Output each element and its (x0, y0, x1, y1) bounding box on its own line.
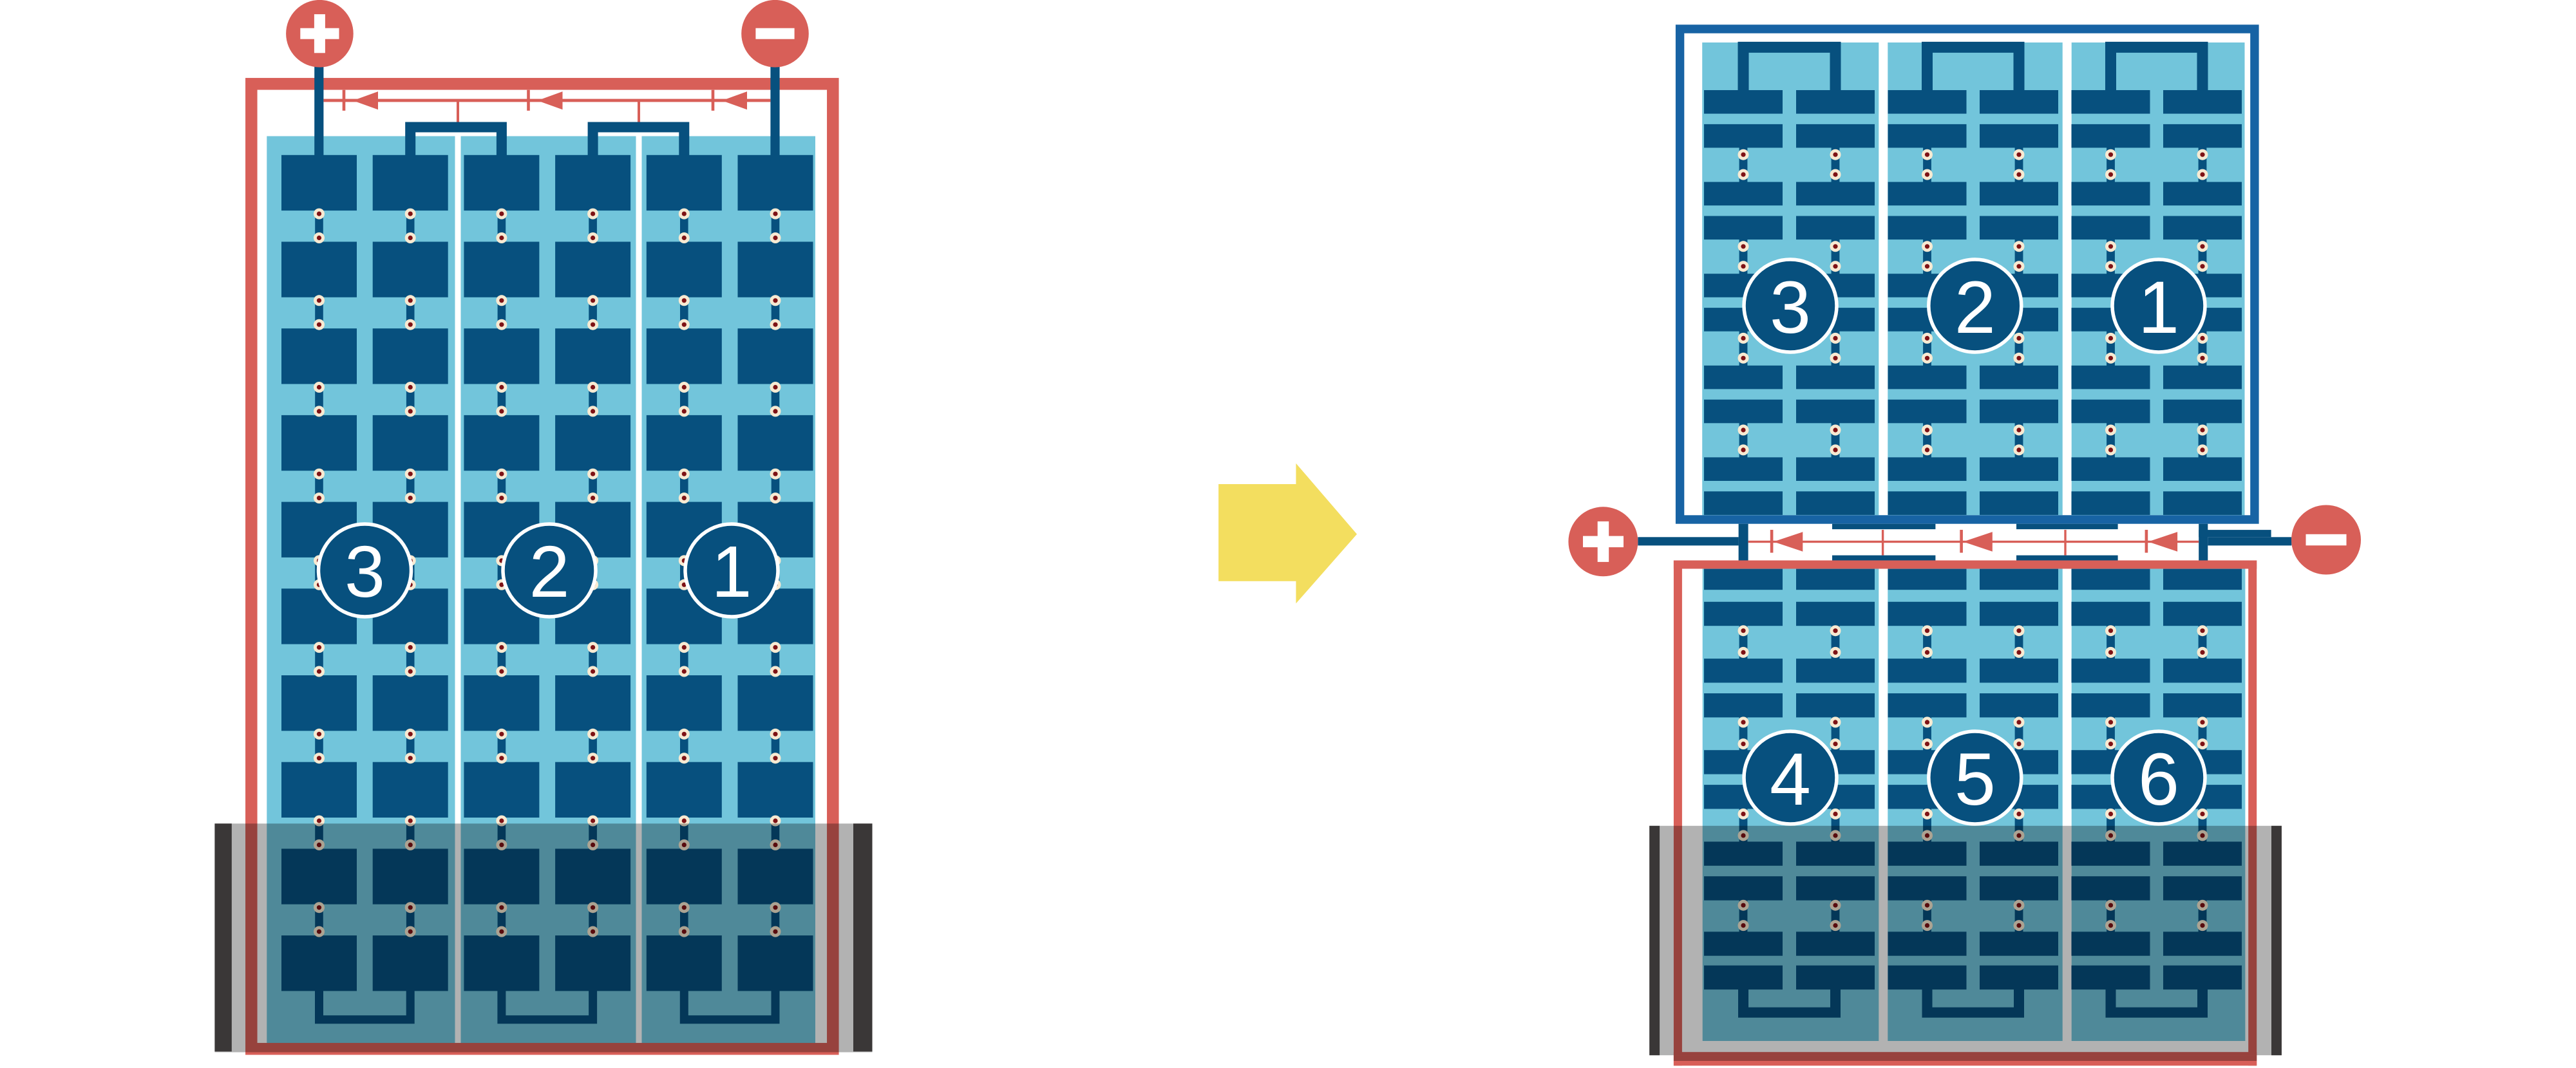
svg-text:5: 5 (1955, 738, 1996, 821)
svg-text:4: 4 (1770, 738, 1811, 821)
svg-text:2: 2 (529, 531, 570, 612)
svg-text:1: 1 (2138, 267, 2179, 349)
svg-text:6: 6 (2138, 738, 2179, 821)
svg-text:3: 3 (1770, 267, 1811, 349)
svg-text:3: 3 (345, 531, 385, 612)
svg-text:2: 2 (1955, 267, 1996, 349)
svg-text:1: 1 (712, 531, 752, 612)
